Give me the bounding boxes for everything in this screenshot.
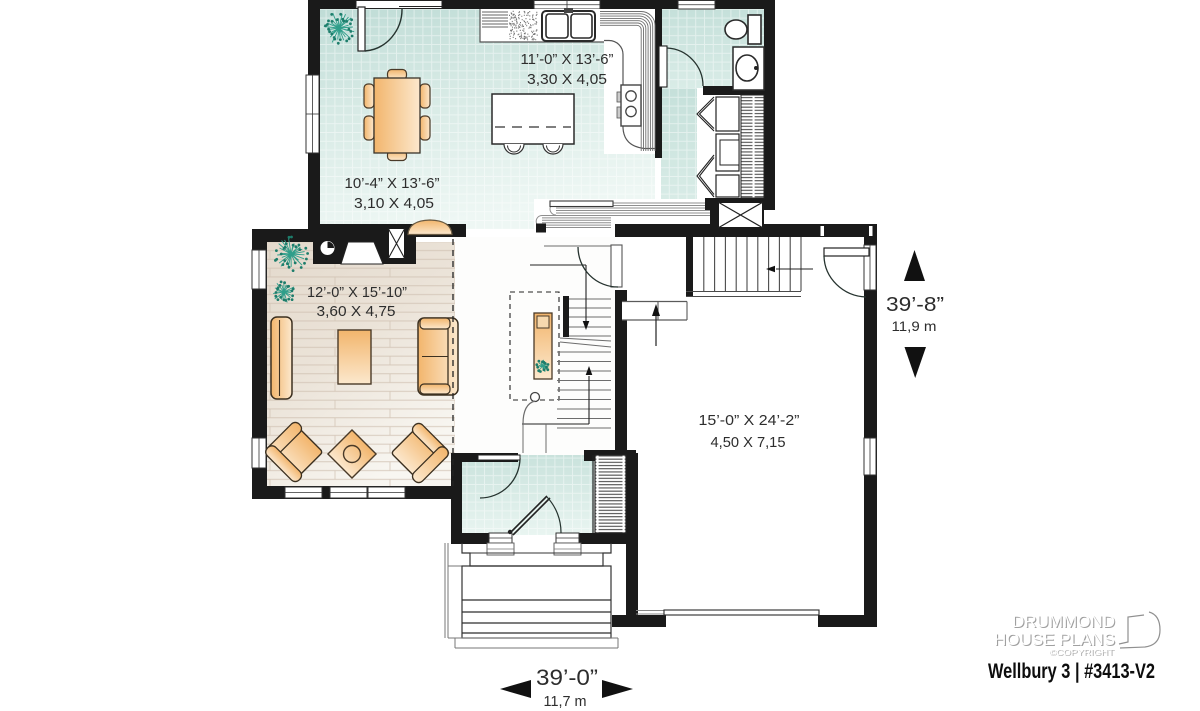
svg-text:11,9 m: 11,9 m <box>892 318 937 334</box>
svg-text:11,7 m: 11,7 m <box>544 693 587 710</box>
svg-text:39’-8”: 39’-8” <box>886 294 944 316</box>
svg-text:3,10 X 4,05: 3,10 X 4,05 <box>354 195 434 212</box>
svg-text:3,60 X 4,75: 3,60 X 4,75 <box>317 303 396 320</box>
svg-text:©COPYRIGHT: ©COPYRIGHT <box>1049 647 1114 657</box>
svg-text:4,50 X 7,15: 4,50 X 7,15 <box>711 434 786 451</box>
svg-text:12’-0” X 15’-10”: 12’-0” X 15’-10” <box>307 284 407 301</box>
svg-text:Wellbury 3 | #3413-V2: Wellbury 3 | #3413-V2 <box>988 660 1155 683</box>
svg-text:15’-0” X 24’-2”: 15’-0” X 24’-2” <box>699 412 800 429</box>
svg-text:DRUMMOND: DRUMMOND <box>1012 612 1115 631</box>
svg-text:11’-0” X 13’-6”: 11’-0” X 13’-6” <box>521 51 614 68</box>
svg-text:10’-4” X 13’-6”: 10’-4” X 13’-6” <box>345 175 440 192</box>
svg-text:39’-0”: 39’-0” <box>536 665 598 690</box>
svg-text:3,30 X 4,05: 3,30 X 4,05 <box>527 71 607 88</box>
